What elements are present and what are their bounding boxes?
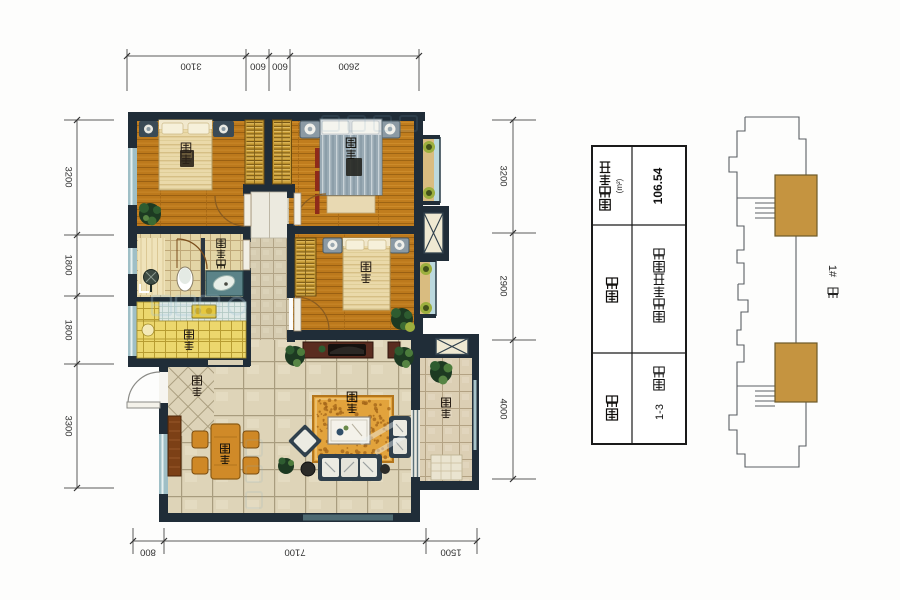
svg-text:1800: 1800 bbox=[62, 319, 73, 340]
svg-text:2600: 2600 bbox=[338, 60, 359, 71]
svg-text:1#: 1# bbox=[826, 265, 838, 278]
svg-text:1-3: 1-3 bbox=[654, 404, 666, 420]
svg-text:4000: 4000 bbox=[497, 398, 508, 419]
svg-text:3100: 3100 bbox=[180, 60, 201, 71]
svg-text:106.54: 106.54 bbox=[651, 167, 665, 204]
svg-text:3200: 3200 bbox=[62, 166, 73, 187]
svg-text:3300: 3300 bbox=[62, 415, 73, 436]
svg-text:1500: 1500 bbox=[440, 546, 461, 557]
svg-text:3200: 3200 bbox=[497, 165, 508, 186]
svg-text:(m²): (m²) bbox=[615, 178, 624, 193]
svg-text:2900: 2900 bbox=[497, 275, 508, 296]
svg-text:1800: 1800 bbox=[62, 254, 73, 275]
svg-text:800: 800 bbox=[140, 546, 156, 557]
svg-text:7100: 7100 bbox=[284, 546, 305, 557]
svg-text:600: 600 bbox=[272, 60, 288, 71]
svg-text:600: 600 bbox=[250, 60, 266, 71]
